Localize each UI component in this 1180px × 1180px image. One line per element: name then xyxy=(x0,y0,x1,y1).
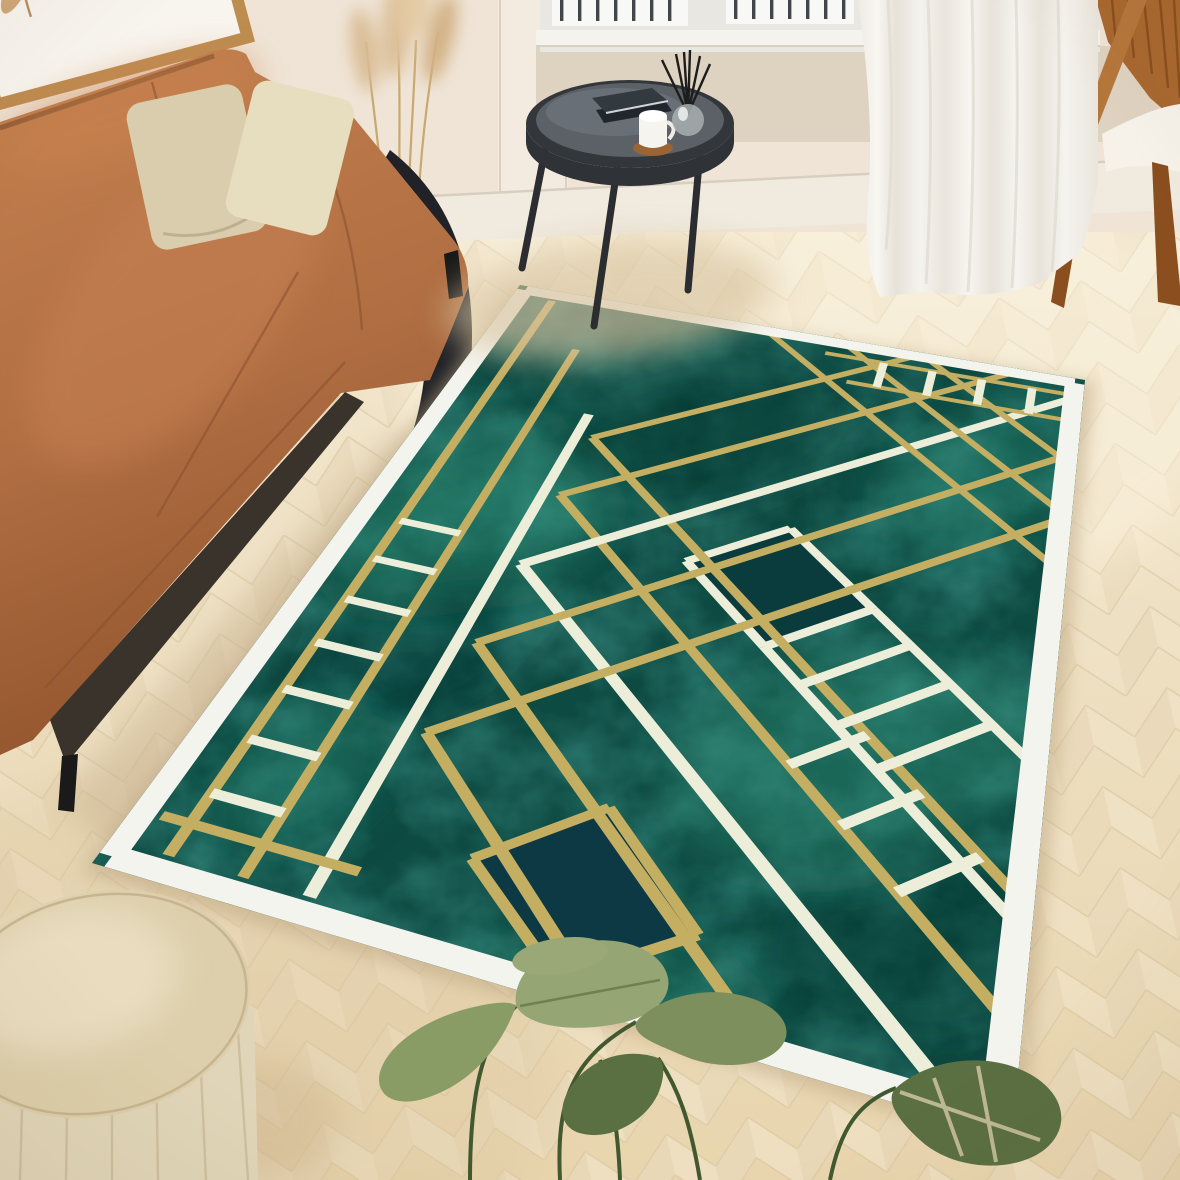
vignette xyxy=(0,0,1180,1180)
living-room-photo xyxy=(0,0,1180,1180)
